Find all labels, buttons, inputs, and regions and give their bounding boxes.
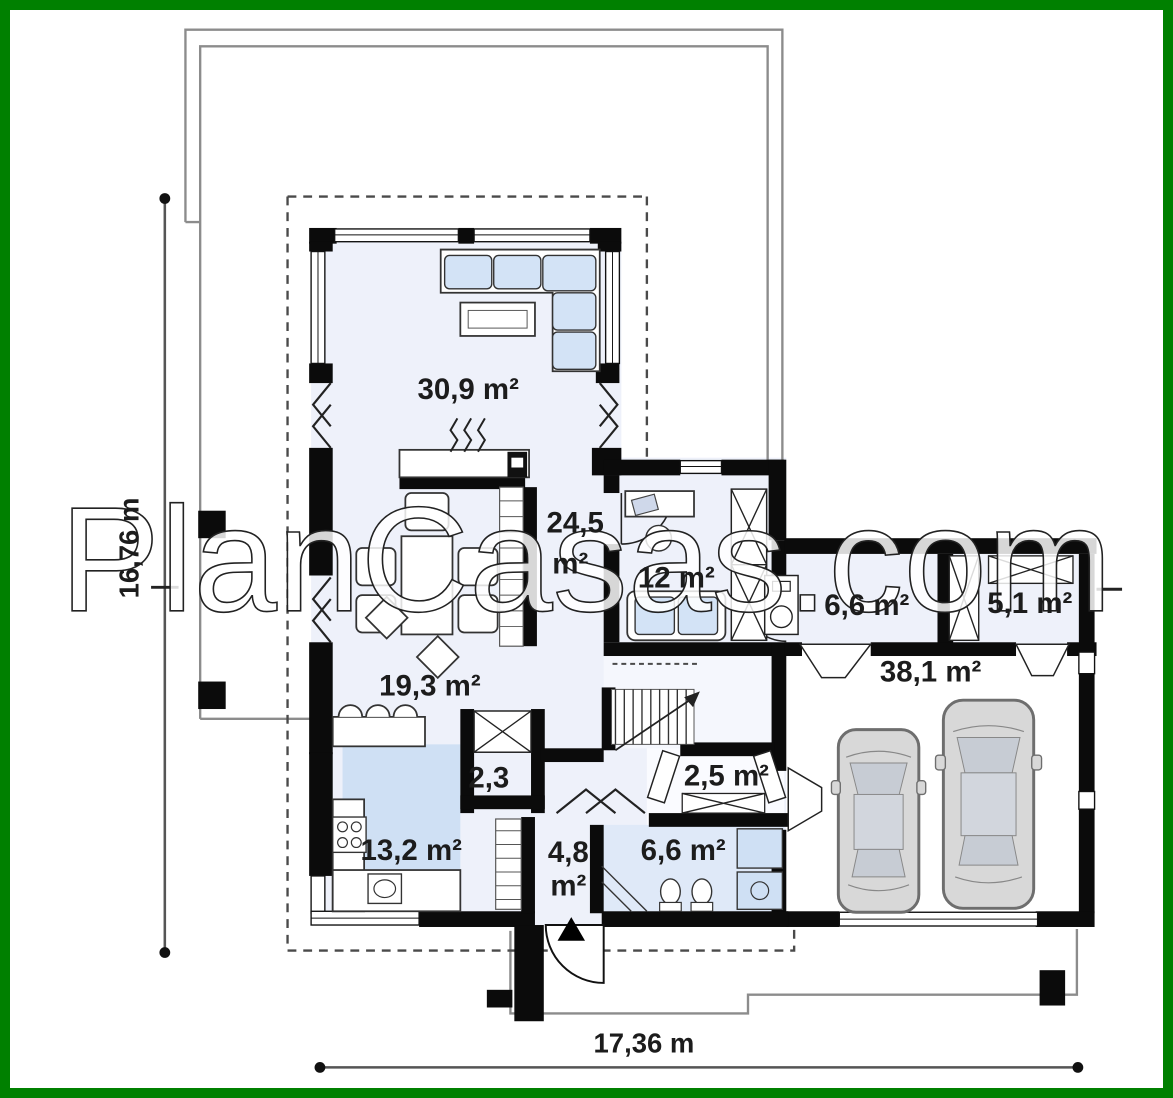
garage-vent [1079, 652, 1095, 674]
window [680, 461, 721, 474]
office-area-label: 12 m² [638, 561, 715, 594]
entry-area-label-line1: 4,8 [548, 836, 589, 869]
canopy-post [1040, 970, 1066, 1005]
garage-area-label: 38,1 m² [880, 656, 982, 689]
car-mirror [917, 781, 926, 795]
storage-area-label: 5,1 m² [987, 587, 1072, 620]
porch-post [487, 990, 513, 1008]
car [831, 730, 925, 913]
window [311, 252, 325, 364]
closet-area-label: 2,3 [468, 762, 509, 795]
stairs [612, 689, 700, 750]
garage-door [839, 912, 1037, 926]
floor-plan-frame: PlanCasas.com 30,9 m² 24,5 m² 12 m² 6,6 … [0, 0, 1173, 1098]
floor-plan-canvas: PlanCasas.com 30,9 m² 24,5 m² 12 m² 6,6 … [10, 10, 1163, 1088]
car-mirror [936, 755, 946, 770]
dining-area-label: 19,3 m² [379, 669, 481, 702]
rear-window [959, 836, 1018, 865]
left-dimension-label: 16,76 m [113, 498, 144, 599]
rear-window [852, 849, 905, 876]
terrace-post [198, 682, 225, 709]
sink-icon [368, 874, 401, 903]
window [474, 229, 590, 242]
coffee-table [460, 303, 535, 336]
entrance-door [546, 917, 604, 983]
bath-vanity [737, 829, 782, 868]
car-mirror [831, 781, 840, 795]
utility-area-label: 6,6 m² [824, 589, 909, 622]
entry-area-label-line2: m² [550, 870, 586, 903]
car-roof [961, 773, 1016, 836]
closet-wardrobe [474, 711, 531, 752]
garage-vent [1079, 792, 1095, 810]
living-room-area-label: 30,9 m² [417, 373, 519, 406]
car-roof [854, 794, 903, 849]
entry-wardrobe [496, 819, 522, 909]
windshield [957, 738, 1020, 773]
hall-area-label-line2: m² [552, 548, 588, 581]
washer-icon [737, 872, 782, 909]
bidet-icon [692, 879, 712, 905]
hall-area-label-line1: 24,5 [547, 506, 604, 539]
toilet-icon [661, 879, 681, 905]
car-mirror [1032, 755, 1042, 770]
window [335, 229, 459, 242]
car [936, 700, 1042, 908]
bottom-dimension-label: 17,36 m [594, 1028, 695, 1059]
windshield [850, 763, 907, 794]
hall-wardrobe-area-label: 2,5 m² [684, 760, 769, 793]
window [606, 252, 620, 364]
bathroom-area-label: 6,6 m² [641, 834, 726, 867]
kitchen-area-label: 13,2 m² [361, 834, 463, 867]
